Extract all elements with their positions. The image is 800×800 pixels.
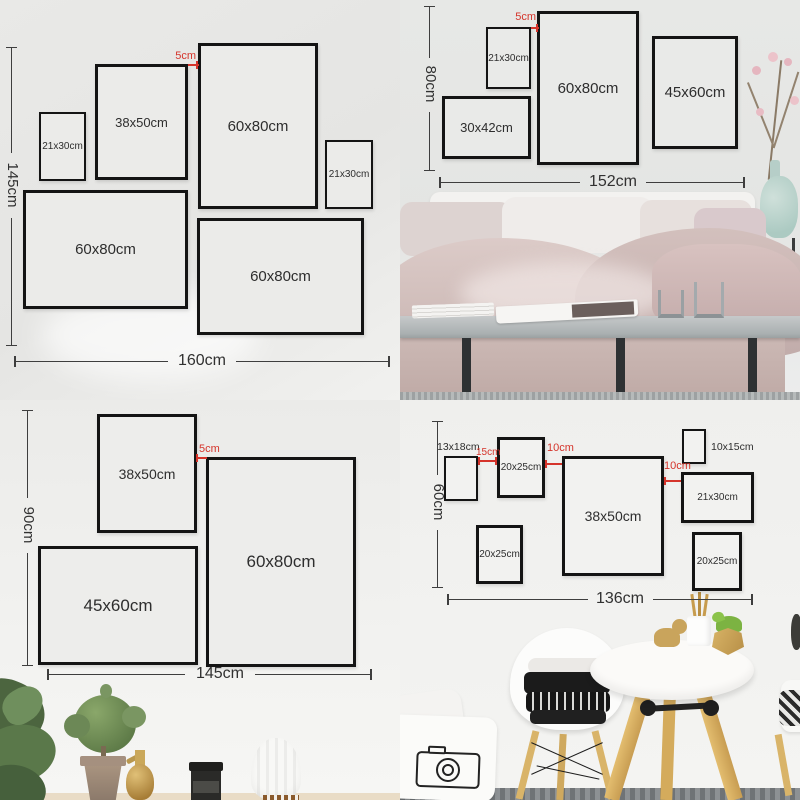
table-hardware-disc (640, 700, 656, 716)
dimension-line-horizontal (255, 674, 370, 675)
picture-frame-10x15 (682, 429, 706, 464)
picture-frame-21x30: 21x30cm (39, 112, 86, 181)
terracotta-pot-rim (80, 756, 126, 766)
candle-holder (694, 282, 724, 318)
camera-print-lens-inner (442, 764, 454, 776)
gap-annotation-line (545, 463, 562, 465)
frame-size-label: 21x30cm (488, 53, 529, 64)
dimension-line-horizontal (448, 599, 588, 600)
picture-frame-60x80-landscape: 60x80cm (23, 190, 188, 309)
quadrant-bottom-right-layout-136x60: 20x25cm 38x50cm 21x30cm 20x25cm 20x25cm … (400, 400, 800, 800)
dimension-cap (432, 587, 443, 588)
dimension-line-vertical (437, 422, 438, 475)
stick-bundle (698, 592, 701, 618)
frame-size-label: 60x80cm (247, 552, 316, 572)
height-dimension-label: 80cm (422, 58, 438, 110)
dimension-line-vertical (27, 553, 28, 665)
gap-annotation-label: 5cm (506, 11, 536, 23)
quadrant-top-right-bedroom-152x80: 21x30cm 60x80cm 45x60cm 30x42cm 5cm 80cm… (400, 0, 800, 400)
picture-frame-60x80: 60x80cm (206, 457, 356, 667)
gap-annotation-label: 10cm (664, 460, 691, 472)
blossom-flower (768, 52, 778, 62)
dimension-line-horizontal (653, 599, 752, 600)
dimension-line-vertical (27, 411, 28, 498)
dimension-line-vertical (437, 530, 438, 587)
picture-frame-13x18 (444, 456, 478, 501)
width-dimension-label: 136cm (589, 590, 651, 608)
frame-size-label: 60x80cm (75, 241, 136, 258)
frame-size-label: 60x80cm (250, 268, 311, 285)
gap-annotation-tick (196, 454, 198, 462)
blossom-flower (752, 66, 761, 75)
gap-annotation-label: 5cm (199, 443, 229, 455)
dimension-cap (743, 177, 745, 188)
height-dimension-label: 90cm (20, 499, 36, 551)
frame-size-label: 21x30cm (42, 141, 83, 152)
gap-annotation-line (664, 480, 681, 482)
dimension-cap (751, 594, 753, 605)
blossom-flower (756, 108, 764, 116)
quadrant-bottom-left-layout-145x90: 38x50cm 60x80cm 45x60cm 5cm 90cm 145cm (0, 400, 400, 800)
dimension-cap (424, 170, 435, 171)
width-dimension-label: 145cm (189, 665, 251, 683)
dimension-line-horizontal (646, 182, 743, 183)
picture-frame-60x80: 60x80cm (537, 11, 639, 165)
frame-size-label: 38x50cm (585, 508, 642, 524)
amber-bottles (263, 795, 299, 800)
picture-frame-30x42: 30x42cm (442, 96, 531, 159)
height-dimension-label: 60cm (430, 476, 446, 528)
picture-frame-45x60: 45x60cm (38, 546, 198, 665)
frame-size-label: 30x42cm (460, 120, 513, 135)
dimension-line-vertical (11, 218, 12, 345)
table-hardware-disc (703, 700, 719, 716)
candle-jar-lid (189, 762, 223, 771)
sweater-black (530, 710, 606, 724)
dimension-line-vertical (429, 112, 430, 170)
frame-size-label: 45x60cm (84, 596, 153, 616)
gap-annotation-label: 10cm (547, 442, 574, 454)
dimension-line-horizontal (440, 182, 580, 183)
dimension-cap (6, 345, 17, 346)
picture-frame-38x50: 38x50cm (97, 414, 197, 533)
frame-size-label-10x15: 10x15cm (711, 441, 754, 453)
height-dimension-label: 145cm (4, 159, 20, 211)
hanging-ornament (791, 614, 800, 650)
bed-skirt (400, 330, 785, 394)
dimension-cap (22, 665, 33, 666)
gap-annotation-tick (545, 460, 547, 468)
gallery-wall-layout-collage: 21x30cm 38x50cm 60x80cm 21x30cm 60x80cm … (0, 0, 800, 800)
picture-frame-60x80: 60x80cm (198, 43, 318, 209)
picture-frame-20x25: 20x25cm (497, 437, 545, 498)
gap-annotation-tick (478, 457, 480, 465)
picture-frame-20x25: 20x25cm (692, 532, 742, 591)
frame-size-label: 60x80cm (228, 118, 289, 135)
dimension-line-vertical (11, 48, 12, 153)
frame-size-label: 20x25cm (479, 549, 520, 560)
picture-frame-38x50: 38x50cm (95, 64, 188, 180)
frame-size-label: 60x80cm (558, 80, 619, 97)
gap-annotation-tick (664, 477, 666, 485)
picture-frame-45x60: 45x60cm (652, 36, 738, 149)
dimension-line-vertical (429, 7, 430, 58)
picture-frame-20x25: 20x25cm (476, 525, 523, 584)
white-gourd-vase (251, 738, 301, 800)
dimension-cap (370, 669, 372, 680)
frame-size-label-13x18: 13x18cm (437, 441, 480, 453)
width-dimension-label: 160cm (171, 352, 233, 370)
dimension-line-horizontal (15, 361, 168, 362)
toy-elephant-head (672, 619, 687, 634)
side-chair-leg (775, 734, 793, 796)
blossom-flower (784, 58, 792, 66)
topiary-sprig (100, 684, 112, 698)
side-chair-cushion (779, 690, 800, 726)
table-leg-wood (660, 698, 676, 800)
picture-frame-38x50: 38x50cm (562, 456, 664, 576)
candle-holder (658, 290, 684, 318)
camera-print-top (428, 746, 446, 755)
gap-annotation-tick (196, 61, 198, 69)
picture-frame-21x30: 21x30cm (486, 27, 531, 89)
topiary-foliage (64, 714, 90, 738)
blossom-flower (790, 96, 799, 105)
dimension-cap (388, 356, 390, 367)
sweater-patterned (526, 692, 610, 712)
bench-leg (616, 338, 625, 398)
frame-size-label: 38x50cm (119, 466, 176, 482)
frame-size-label: 45x60cm (665, 84, 726, 101)
brass-mister-body (126, 764, 154, 800)
rug (400, 392, 800, 400)
stick-bundle (690, 594, 696, 618)
gap-annotation-tick (536, 24, 538, 32)
frame-size-label: 20x25cm (697, 556, 738, 567)
picture-frame-21x30: 21x30cm (325, 140, 373, 209)
bench-leg (462, 338, 471, 398)
candle-jar-label (193, 781, 219, 793)
frame-size-label: 20x25cm (501, 462, 542, 473)
stick-bundle (702, 594, 708, 618)
quadrant-top-left-layout-160x145: 21x30cm 38x50cm 60x80cm 21x30cm 60x80cm … (0, 0, 400, 400)
frame-size-label: 21x30cm (329, 169, 370, 180)
frame-size-label: 21x30cm (697, 492, 738, 503)
bench-top (400, 316, 800, 338)
gap-annotation-label: 5cm (166, 50, 196, 62)
pencil-cup (687, 616, 711, 646)
picture-frame-21x30: 21x30cm (681, 472, 754, 523)
dimension-line-horizontal (236, 361, 389, 362)
frame-size-label: 38x50cm (115, 115, 168, 130)
gap-annotation-tick (495, 457, 497, 465)
dimension-line-horizontal (48, 674, 185, 675)
picture-frame-60x80-landscape: 60x80cm (197, 218, 364, 335)
bench-leg (748, 338, 757, 398)
width-dimension-label: 152cm (582, 173, 644, 191)
topiary-foliage (122, 706, 146, 728)
